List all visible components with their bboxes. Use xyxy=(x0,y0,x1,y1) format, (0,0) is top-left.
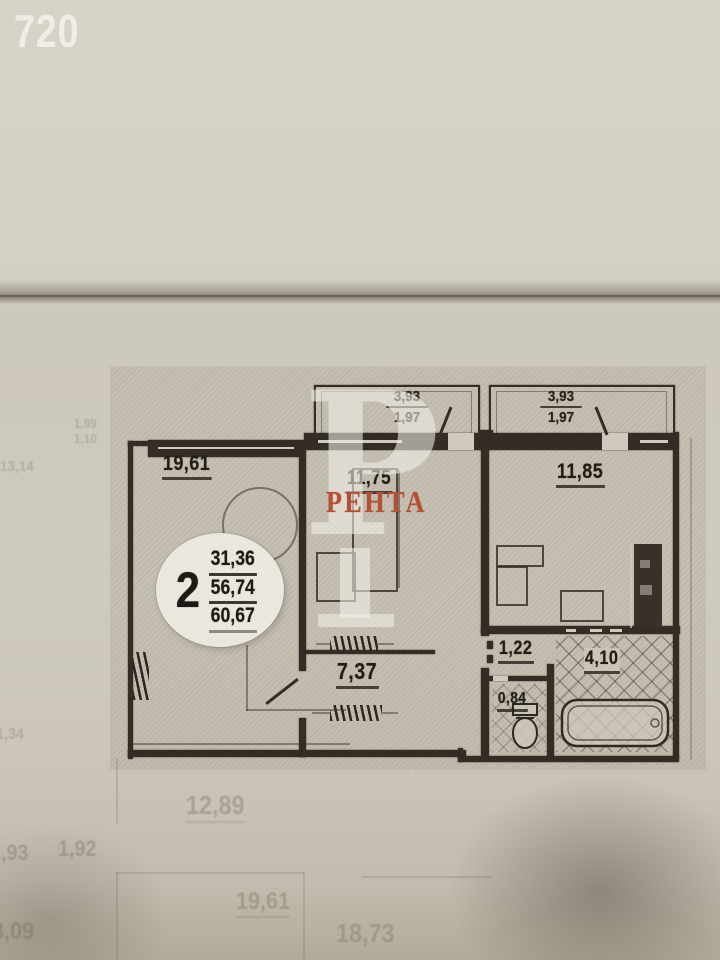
wall xyxy=(481,441,489,636)
vent-shaft-hole xyxy=(640,560,650,568)
hall-area-label: 7,37 xyxy=(336,658,379,689)
radiator-pipe xyxy=(316,643,330,645)
stove-icon xyxy=(560,590,604,622)
living-area-value: 31,36 xyxy=(209,547,257,576)
bathroom-area-label: 4,10 xyxy=(584,648,620,674)
door-jamb xyxy=(487,655,493,663)
watermark-brand: РЕНТА xyxy=(326,484,427,520)
counter-icon xyxy=(496,545,544,567)
vent-grille xyxy=(590,629,602,632)
ghost-line xyxy=(303,872,305,960)
wc-door-opening xyxy=(493,676,508,681)
watermark-letter-stem xyxy=(340,548,370,618)
counter-icon xyxy=(496,566,528,606)
wall xyxy=(299,718,306,757)
room-area-label: 19,61 xyxy=(162,452,212,480)
vent-grille xyxy=(610,629,622,632)
window-glass-line xyxy=(158,447,294,449)
photo-shadow xyxy=(390,730,720,960)
radiator-pipe xyxy=(378,643,394,645)
sheet-line xyxy=(690,438,692,760)
room-area-label: 11,85 xyxy=(556,460,605,488)
photo-shadow xyxy=(0,780,220,960)
vent-shaft-hole xyxy=(640,585,652,595)
total-area-with-balcony-value: 60,67 xyxy=(209,604,257,633)
wc-area-label: 0,84 xyxy=(497,690,528,712)
door-jamb xyxy=(487,641,493,649)
ghost-label: 1,34 xyxy=(0,726,24,744)
paper-fold-shadow xyxy=(0,280,720,304)
balcony-area-label: 3,93 1,97 xyxy=(540,388,581,426)
ghost-label: 13,14 xyxy=(0,458,34,475)
total-area-value: 56,74 xyxy=(209,576,257,605)
area-summary: 31,36 56,74 60,67 xyxy=(209,547,266,633)
corridor-area-label: 1,22 xyxy=(498,638,534,664)
balcony-full-area: 3,93 xyxy=(540,388,581,408)
floor-plan-photo: 19,61 11,75 11,85 7,37 1,22 4,10 0,84 3,… xyxy=(0,0,720,960)
furniture-line xyxy=(246,645,248,711)
shaft-edge xyxy=(630,544,632,628)
ghost-label: 1,10 xyxy=(74,431,97,446)
radiator-icon xyxy=(330,705,382,721)
balcony-door-opening xyxy=(602,433,628,450)
wall xyxy=(128,441,133,759)
room-count: 2 xyxy=(176,565,200,615)
vent-grille xyxy=(566,629,576,632)
furniture-line xyxy=(246,709,346,711)
ghost-label: 19,61 xyxy=(236,888,290,918)
radiator-pipe xyxy=(312,712,330,714)
balcony-door-opening xyxy=(448,433,474,450)
wall xyxy=(128,743,350,745)
balcony-reduced-area: 1,97 xyxy=(540,408,581,426)
ghost-label: 18,73 xyxy=(336,918,395,949)
window-glass-line xyxy=(640,440,668,443)
page-number-overlay: 720 xyxy=(14,4,79,58)
radiator-icon xyxy=(330,636,378,651)
radiator-icon xyxy=(133,652,149,700)
ghost-label: 1,99 xyxy=(74,416,97,431)
unit-info-badge: 2 31,36 56,74 60,67 xyxy=(156,533,284,647)
watermark-letter-foot xyxy=(318,614,394,627)
radiator-pipe xyxy=(382,712,398,714)
watermark-letter: Р xyxy=(303,366,440,564)
